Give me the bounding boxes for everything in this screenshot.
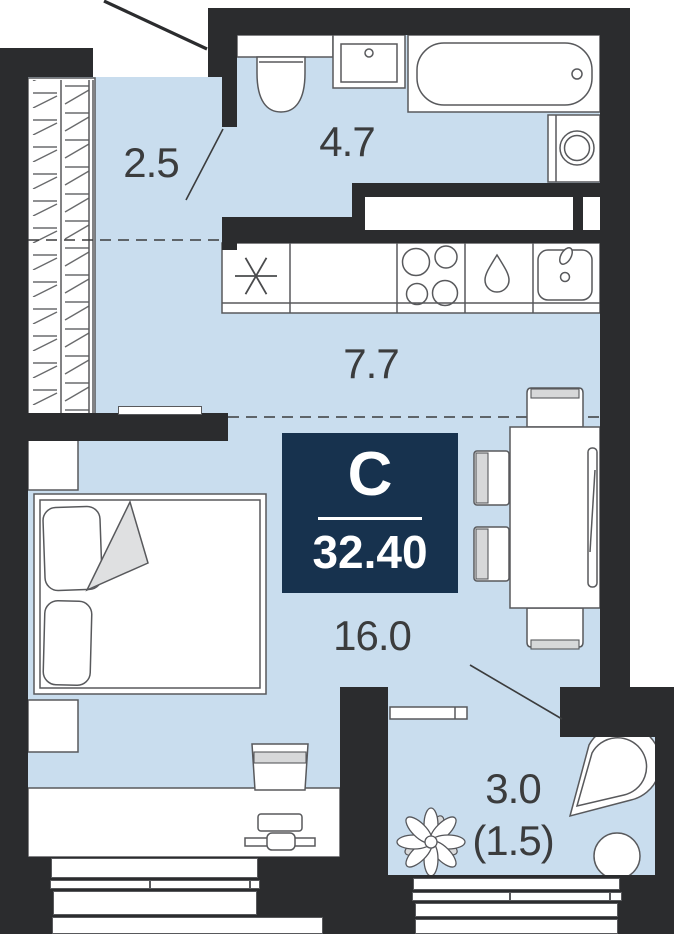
floor-plan: 2.5 4.7 7.7 16.0 3.0 (1.5) С 32.40 (0, 0, 674, 934)
apartment-total-area: 32.40 (282, 525, 458, 579)
living-room-area-label: 16.0 (333, 612, 411, 660)
balcony-door-swing (470, 665, 562, 719)
apartment-type-label: С (282, 439, 458, 510)
bathroom-area-label: 4.7 (319, 118, 374, 166)
apartment-badge[interactable]: С 32.40 (282, 433, 458, 593)
kitchen-area-label: 7.7 (343, 340, 398, 388)
balcony-reduced-area-label: (1.5) (472, 817, 553, 865)
balcony-area-label: 3.0 (485, 765, 540, 813)
hallway-area-label: 2.5 (123, 139, 178, 187)
entrance-door-swing (104, 1, 207, 49)
bathroom-door-swing (186, 129, 223, 200)
badge-divider (318, 517, 422, 520)
